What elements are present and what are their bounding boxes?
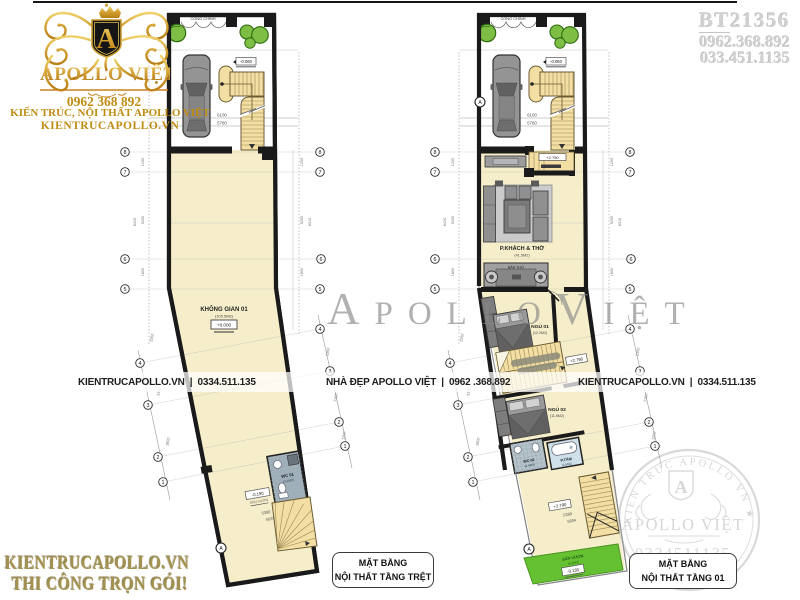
svg-text:P.KHÁCH & THỜ: P.KHÁCH & THỜ (500, 244, 544, 252)
svg-text:5200: 5200 (451, 216, 455, 224)
svg-text:3: 3 (457, 403, 460, 409)
svg-text:8310: 8310 (308, 218, 312, 226)
svg-text:8: 8 (124, 150, 127, 156)
svg-text:5200: 5200 (610, 216, 614, 224)
svg-text:2: 2 (338, 420, 341, 426)
svg-text:5200: 5200 (141, 216, 145, 224)
svg-text:2350: 2350 (635, 347, 640, 356)
svg-text:1: 1 (162, 480, 165, 486)
svg-text:2: 2 (648, 420, 651, 426)
svg-text:4: 4 (319, 327, 322, 333)
svg-text:2: 2 (157, 455, 160, 461)
svg-text:4: 4 (139, 361, 142, 367)
svg-text:1800: 1800 (141, 268, 145, 276)
svg-text:1: 1 (472, 480, 475, 486)
svg-text:1800: 1800 (165, 437, 170, 446)
svg-text:BÀN THỜ: BÀN THỜ (508, 265, 524, 270)
svg-text:1200: 1200 (341, 431, 346, 440)
svg-text:8: 8 (434, 150, 437, 156)
svg-text:5200: 5200 (300, 216, 304, 224)
svg-text:1800: 1800 (610, 268, 614, 276)
svg-text:+0.000: +0.000 (217, 323, 232, 328)
svg-text:7150: 7150 (333, 393, 338, 402)
svg-text:1200: 1200 (300, 158, 304, 166)
svg-text:8310: 8310 (618, 218, 622, 226)
svg-text:KHÔNG GIAN 01: KHÔNG GIAN 01 (200, 305, 248, 313)
svg-text:7: 7 (434, 170, 437, 176)
svg-text:4: 4 (449, 361, 452, 367)
svg-text:8: 8 (629, 150, 632, 156)
svg-text:7150: 7150 (643, 393, 648, 402)
svg-text:2: 2 (467, 455, 470, 461)
svg-text:A: A (675, 477, 688, 497)
svg-text:5780: 5780 (527, 121, 537, 126)
svg-text:1200: 1200 (451, 158, 455, 166)
svg-text:8420: 8420 (443, 218, 447, 226)
svg-text:5: 5 (319, 287, 322, 293)
svg-text:6: 6 (630, 257, 633, 263)
svg-text:1800: 1800 (451, 268, 455, 276)
svg-text:(105.5M2): (105.5M2) (215, 314, 234, 319)
svg-text:1800: 1800 (475, 437, 480, 446)
svg-text:+2.750: +2.750 (546, 155, 559, 160)
svg-text:2350: 2350 (325, 347, 330, 356)
svg-text:5: 5 (124, 287, 127, 293)
svg-text:-0.060: -0.060 (550, 59, 563, 64)
svg-text:-0.060: -0.060 (240, 59, 253, 64)
svg-text:8: 8 (319, 150, 322, 156)
svg-text:(41.5M2): (41.5M2) (514, 254, 530, 258)
svg-text:NGỦ 02: NGỦ 02 (548, 406, 566, 413)
svg-text:7: 7 (124, 170, 127, 176)
svg-text:(11.6M2): (11.6M2) (550, 414, 564, 418)
svg-text:7: 7 (319, 170, 322, 176)
svg-text:1: 1 (654, 444, 657, 450)
svg-text:3: 3 (147, 403, 150, 409)
svg-text:1200: 1200 (141, 158, 145, 166)
svg-text:A: A (96, 24, 117, 55)
svg-text:2350: 2350 (149, 333, 154, 342)
svg-text:1: 1 (344, 444, 347, 450)
svg-text:6: 6 (434, 257, 437, 263)
svg-text:1200: 1200 (610, 158, 614, 166)
svg-text:1800: 1800 (300, 268, 304, 276)
svg-text:1200: 1200 (651, 431, 656, 440)
svg-text:6: 6 (124, 257, 127, 263)
svg-text:APOLLO VIỆT: APOLLO VIỆT (622, 515, 745, 534)
svg-text:8420: 8420 (133, 218, 137, 226)
svg-text:6: 6 (320, 257, 323, 263)
svg-text:7: 7 (629, 170, 632, 176)
svg-text:6100: 6100 (527, 113, 537, 118)
